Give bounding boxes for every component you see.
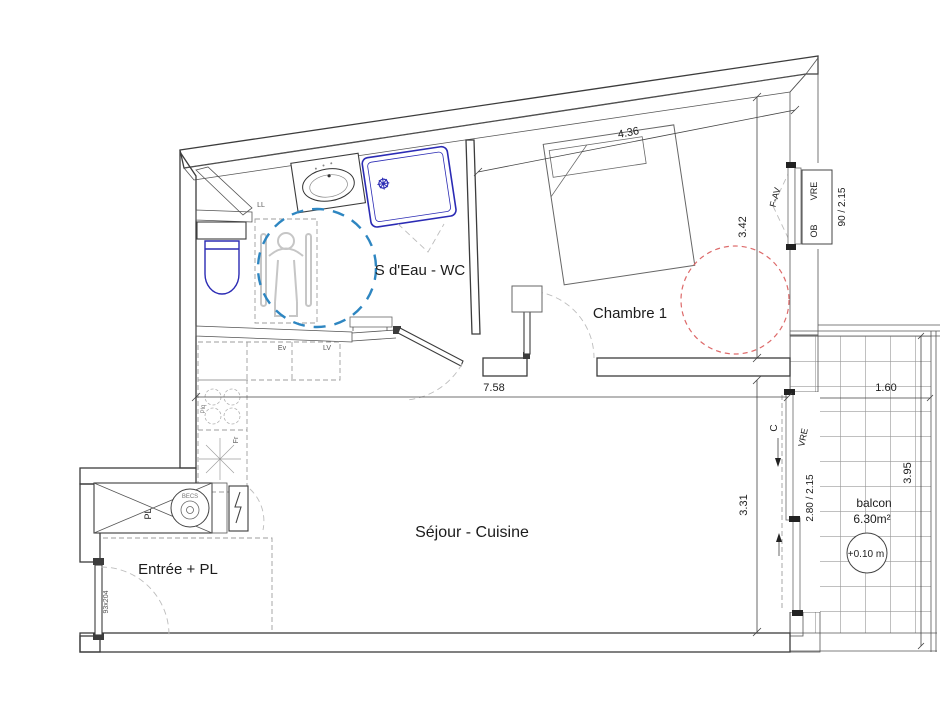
electrical-panel — [229, 486, 264, 531]
appliance-label-water-heater: BECS — [182, 494, 198, 500]
water-heater: BECS — [171, 489, 209, 527]
bench — [350, 317, 392, 327]
dim-living-width-label: 7.58 — [483, 382, 504, 394]
slider-direction: C — [769, 424, 782, 556]
wall-living-bedroom-b — [597, 358, 790, 376]
room-label-bathroom: S d'Eau - WC — [375, 262, 466, 279]
wall-bathroom-bottom — [196, 326, 352, 342]
dim-balcony-length-label: 3.95 — [902, 462, 914, 483]
appliance-label-cooktop: Plq — [201, 405, 207, 414]
appliance-label-sink: Ev — [278, 345, 287, 352]
wall-step — [80, 468, 196, 484]
niche-partition-diag — [196, 167, 252, 215]
wall-left — [180, 152, 196, 468]
entry: PL BECS Entrée + PL — [94, 483, 272, 633]
shower — [361, 146, 456, 228]
dim-living-width: 7.58 — [192, 382, 792, 401]
window-label-ob: OB — [809, 224, 819, 237]
window-label-fav: F-AV — [768, 186, 783, 208]
appliance-label-closet: PL — [143, 508, 153, 519]
dim-entry-door-label: 93x204 — [103, 590, 110, 613]
dim-balcony-width-label: 1.60 — [875, 382, 896, 394]
dimensions: 4.36 3.42 7.58 3.31 — [192, 93, 799, 636]
wall-bottom — [80, 633, 790, 652]
wall-living-bedroom-a — [483, 358, 527, 376]
dim-living-depth: 3.31 — [738, 376, 761, 636]
kitchen: Ev LV Plq Fr — [198, 342, 340, 492]
appliance-label-fridge: Fr — [233, 436, 240, 443]
appliance-label-washing-machine: LL — [257, 202, 265, 209]
clearance-circle — [681, 246, 789, 354]
appliance-label-dishwasher: LV — [323, 345, 331, 352]
drain-symbol — [199, 438, 241, 480]
bed — [543, 125, 695, 285]
bedroom: Chambre 1 — [512, 125, 789, 354]
balcony-level-label: +0.10 m — [848, 549, 884, 560]
window-label-direction: C — [769, 424, 780, 431]
bathroom-door — [393, 326, 463, 400]
doors: 93x204 — [93, 291, 594, 640]
balcony-area-label: 6.30m² — [853, 512, 890, 526]
wall-bedroom-partition — [466, 140, 480, 334]
vanity-sink — [291, 153, 366, 213]
dim-bedroom-window-label: 90 / 2.15 — [837, 187, 848, 226]
floor-plan-svg: 1.60 3.95 balcon 6.30m² +0.10 m — [0, 0, 940, 705]
dim-balcony-window-label: 2.80 / 2.15 — [805, 474, 816, 522]
level-marker: +0.10 m — [847, 533, 887, 573]
balcony-window: VRE 2.80 / 2.15 C — [769, 389, 820, 616]
room-label-living: Séjour - Cuisine — [415, 524, 529, 541]
bench-feet — [353, 327, 387, 331]
window-label-vre-bedroom: VRE — [809, 182, 819, 201]
bedroom-window: VRE OB F-AV 90 / 2.15 — [768, 162, 848, 250]
room-label-entry: Entrée + PL — [138, 561, 218, 578]
toilet-cistern — [197, 222, 246, 239]
wall-top-outer — [180, 56, 818, 168]
balcony-right-edge — [931, 331, 936, 652]
wall-right-mid — [790, 246, 818, 335]
balcony-bottom-edge — [790, 633, 937, 651]
wall-bathroom-doorframe — [352, 330, 396, 341]
dim-bedroom-depth: 3.42 — [737, 93, 761, 362]
room-label-bedroom: Chambre 1 — [593, 305, 667, 322]
shower-screen-swing — [398, 224, 444, 252]
entry-hatch-strip — [212, 483, 227, 533]
cooktop — [205, 389, 240, 424]
dim-bedroom-depth-label: 3.42 — [737, 216, 749, 237]
wall-top-inner — [184, 74, 806, 180]
toilet — [205, 241, 239, 294]
entry-zone-outline — [103, 538, 272, 633]
dim-living-depth-label: 3.31 — [738, 494, 750, 515]
balcony-top-edge — [790, 325, 940, 336]
room-label-balcony: balcon — [856, 496, 891, 510]
niche-partition-horiz — [196, 210, 252, 222]
kitchen-counter — [198, 342, 340, 380]
nightstand — [512, 286, 542, 312]
